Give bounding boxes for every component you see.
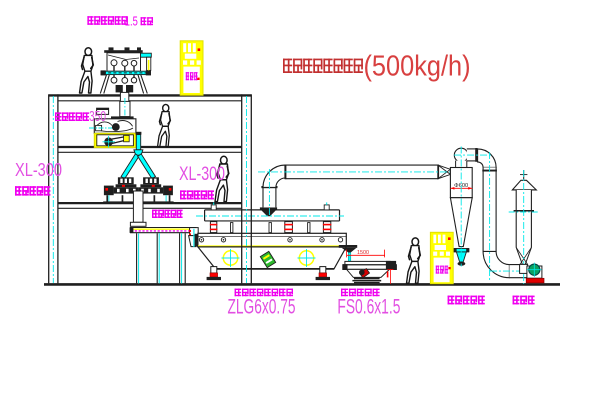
svg-text:1500: 1500: [357, 250, 369, 256]
svg-text:1.5: 1.5: [125, 15, 138, 29]
svg-text:350: 350: [89, 108, 106, 125]
svg-text:(500kg/h): (500kg/h): [364, 50, 471, 82]
svg-text:ZLG6x0.75: ZLG6x0.75: [228, 295, 296, 318]
svg-text:XL-300: XL-300: [179, 163, 225, 185]
svg-text:FS0.6x1.5: FS0.6x1.5: [337, 295, 400, 318]
svg-text:XL-300: XL-300: [15, 159, 62, 180]
